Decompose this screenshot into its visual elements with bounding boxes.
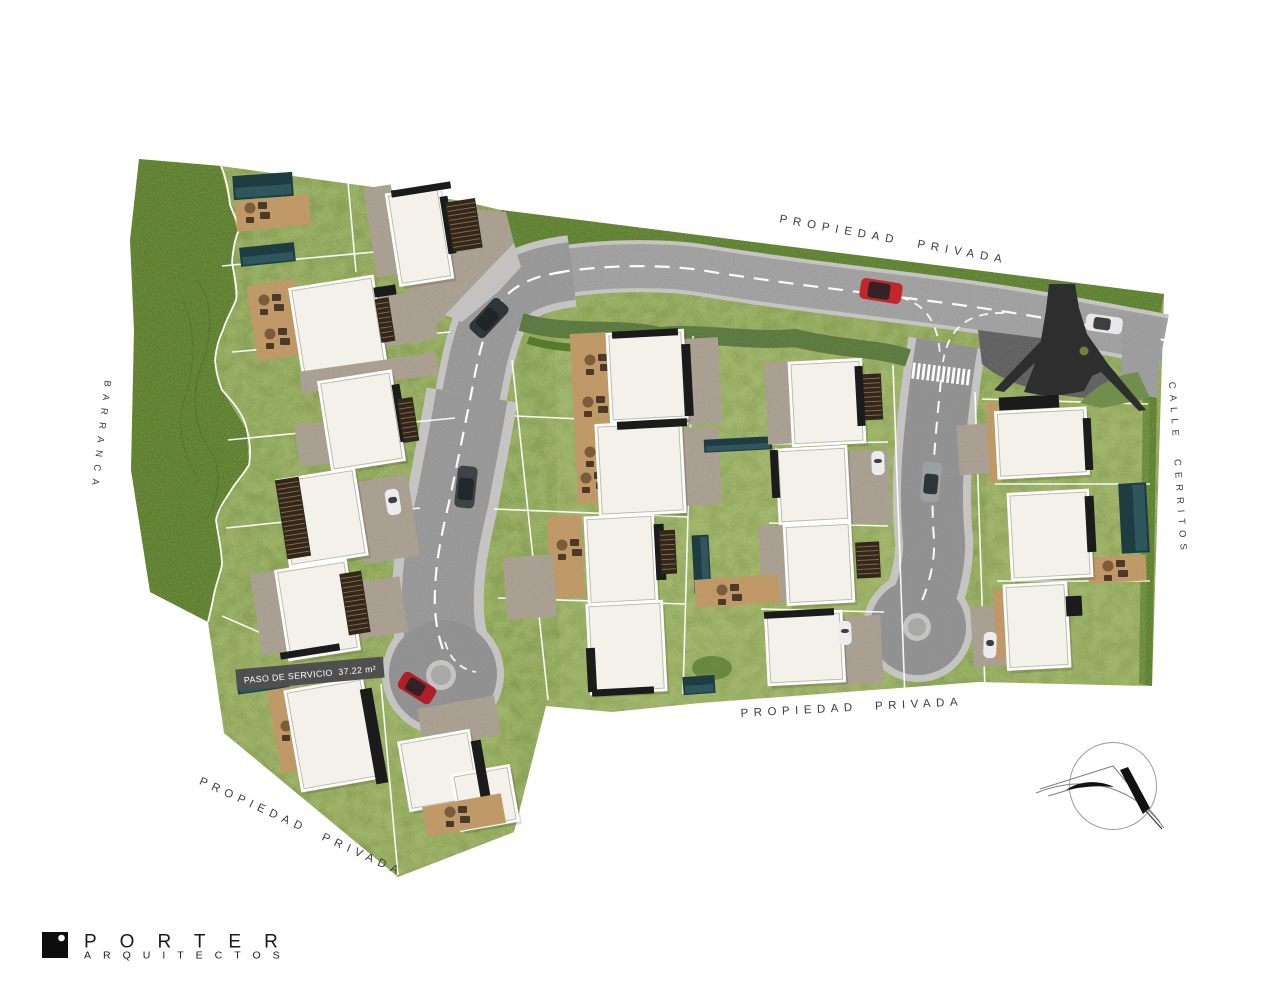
svg-text:PROPIEDAD PRIVADA: PROPIEDAD PRIVADA bbox=[740, 696, 963, 720]
svg-text:CALLE CERRITOS: CALLE CERRITOS bbox=[1166, 382, 1189, 557]
svg-text:BARRANCA: BARRANCA bbox=[88, 380, 113, 493]
svg-text:ARQUITECTOS: ARQUITECTOS bbox=[84, 950, 292, 962]
